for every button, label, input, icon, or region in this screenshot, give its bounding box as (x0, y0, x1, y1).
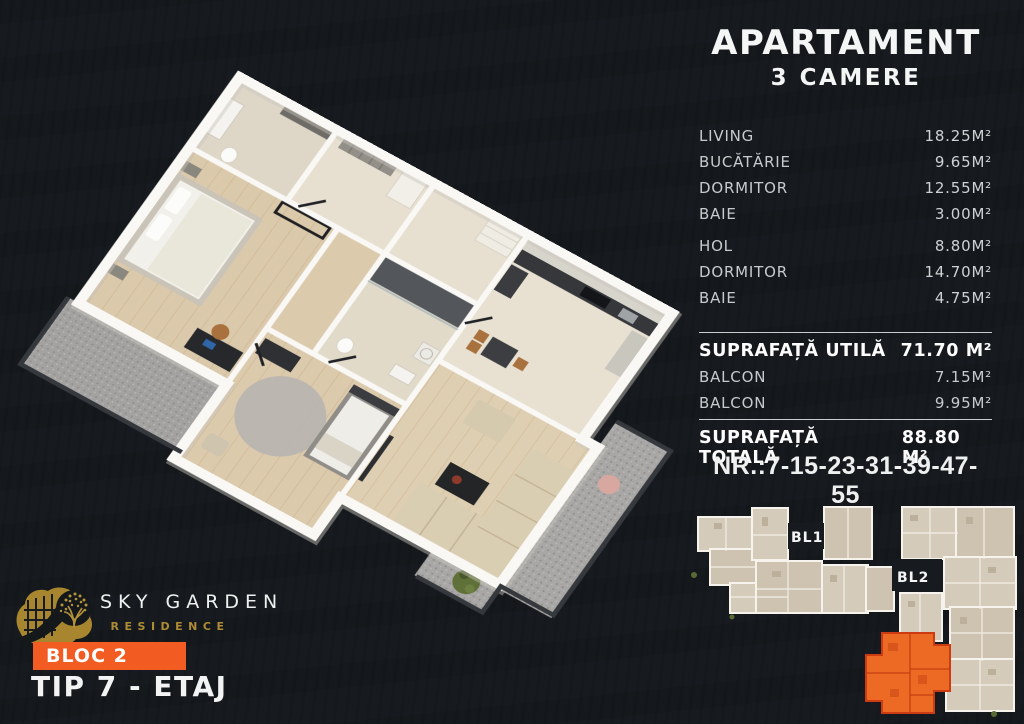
useful-area-label: SUPRAFAȚĂ UTILĂ (699, 341, 886, 361)
room-row: LIVING 18.25M² (699, 127, 992, 153)
highlighted-unit (866, 633, 950, 713)
room-row: HOL 8.80M² (699, 237, 992, 263)
balcony1-row: BALCON 7.15M² (699, 368, 992, 386)
balcony2-label: BALCON (699, 394, 766, 412)
room-label: LIVING (699, 127, 754, 145)
room-area: 18.25M² (925, 127, 993, 145)
type-floor-label: TIP 7 - ETAJ (31, 670, 228, 703)
room-row: BUCĂTĂRIE 9.65M² (699, 153, 992, 179)
balcony1-label: BALCON (699, 368, 766, 386)
title-line1: APARTAMENT (690, 26, 1002, 62)
divider-line (699, 419, 992, 420)
logo-name: SKY GARDEN (100, 591, 240, 613)
useful-area-row: SUPRAFAȚĂ UTILĂ 71.70 M² (699, 341, 992, 361)
block-badge: BLOC 2 (33, 642, 186, 670)
useful-area-value: 71.70 M² (901, 341, 992, 361)
room-label: BAIE (699, 205, 737, 223)
balcony2-row: BALCON 9.95M² (699, 394, 992, 412)
title-line2: 3 CAMERE (690, 65, 1002, 91)
logo-icon-svg (12, 584, 96, 648)
logo-text: SKY GARDEN RESIDENCE (100, 591, 240, 633)
site-plan-units (698, 507, 1016, 711)
room-list: LIVING 18.25M² BUCĂTĂRIE 9.65M² DORMITOR… (699, 127, 992, 315)
logo-subtitle: RESIDENCE (100, 620, 240, 633)
bl2-label: BL2 (897, 570, 929, 586)
building-site-plan: BL1 BL2 (688, 505, 1020, 721)
balcony2-value: 9.95M² (935, 394, 992, 412)
room-area: 8.80M² (935, 237, 992, 255)
balcony1-value: 7.15M² (935, 368, 992, 386)
room-label: BAIE (699, 289, 737, 307)
unit-numbers: NR.:7-15-23-31-39-47-55 (699, 452, 992, 510)
room-area: 9.65M² (935, 153, 992, 171)
room-label: HOL (699, 237, 733, 255)
bl1-label: BL1 (791, 530, 823, 546)
room-label: DORMITOR (699, 263, 788, 281)
room-area: 4.75M² (935, 289, 992, 307)
room-label: DORMITOR (699, 179, 788, 197)
room-row: BAIE 3.00M² (699, 205, 992, 231)
room-area: 3.00M² (935, 205, 992, 223)
room-row: DORMITOR 14.70M² (699, 263, 992, 289)
page-title: APARTAMENT 3 CAMERE (690, 26, 1002, 91)
room-area: 14.70M² (925, 263, 993, 281)
site-plan-svg: BL1 BL2 (688, 505, 1020, 717)
room-area: 12.55M² (925, 179, 993, 197)
room-label: BUCĂTĂRIE (699, 153, 791, 171)
room-row: DORMITOR 12.55M² (699, 179, 992, 205)
divider-line (699, 332, 992, 333)
room-row: BAIE 4.75M² (699, 289, 992, 315)
